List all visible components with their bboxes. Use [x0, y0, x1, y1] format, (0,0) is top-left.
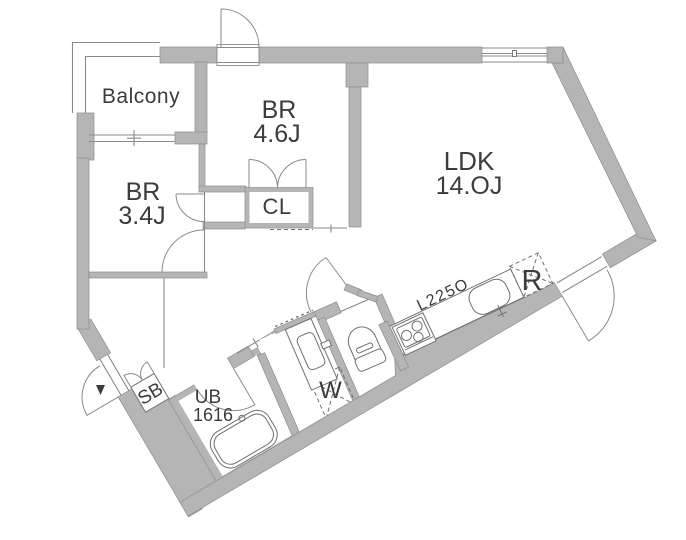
svg-text:R: R — [522, 265, 543, 297]
svg-text:1616: 1616 — [193, 405, 233, 425]
svg-text:3.4J: 3.4J — [118, 202, 165, 230]
svg-text:W: W — [319, 377, 342, 404]
svg-text:CL: CL — [262, 194, 291, 219]
svg-text:Balcony: Balcony — [102, 85, 180, 108]
svg-text:14.OJ: 14.OJ — [436, 172, 503, 200]
svg-text:4.6J: 4.6J — [253, 120, 300, 148]
